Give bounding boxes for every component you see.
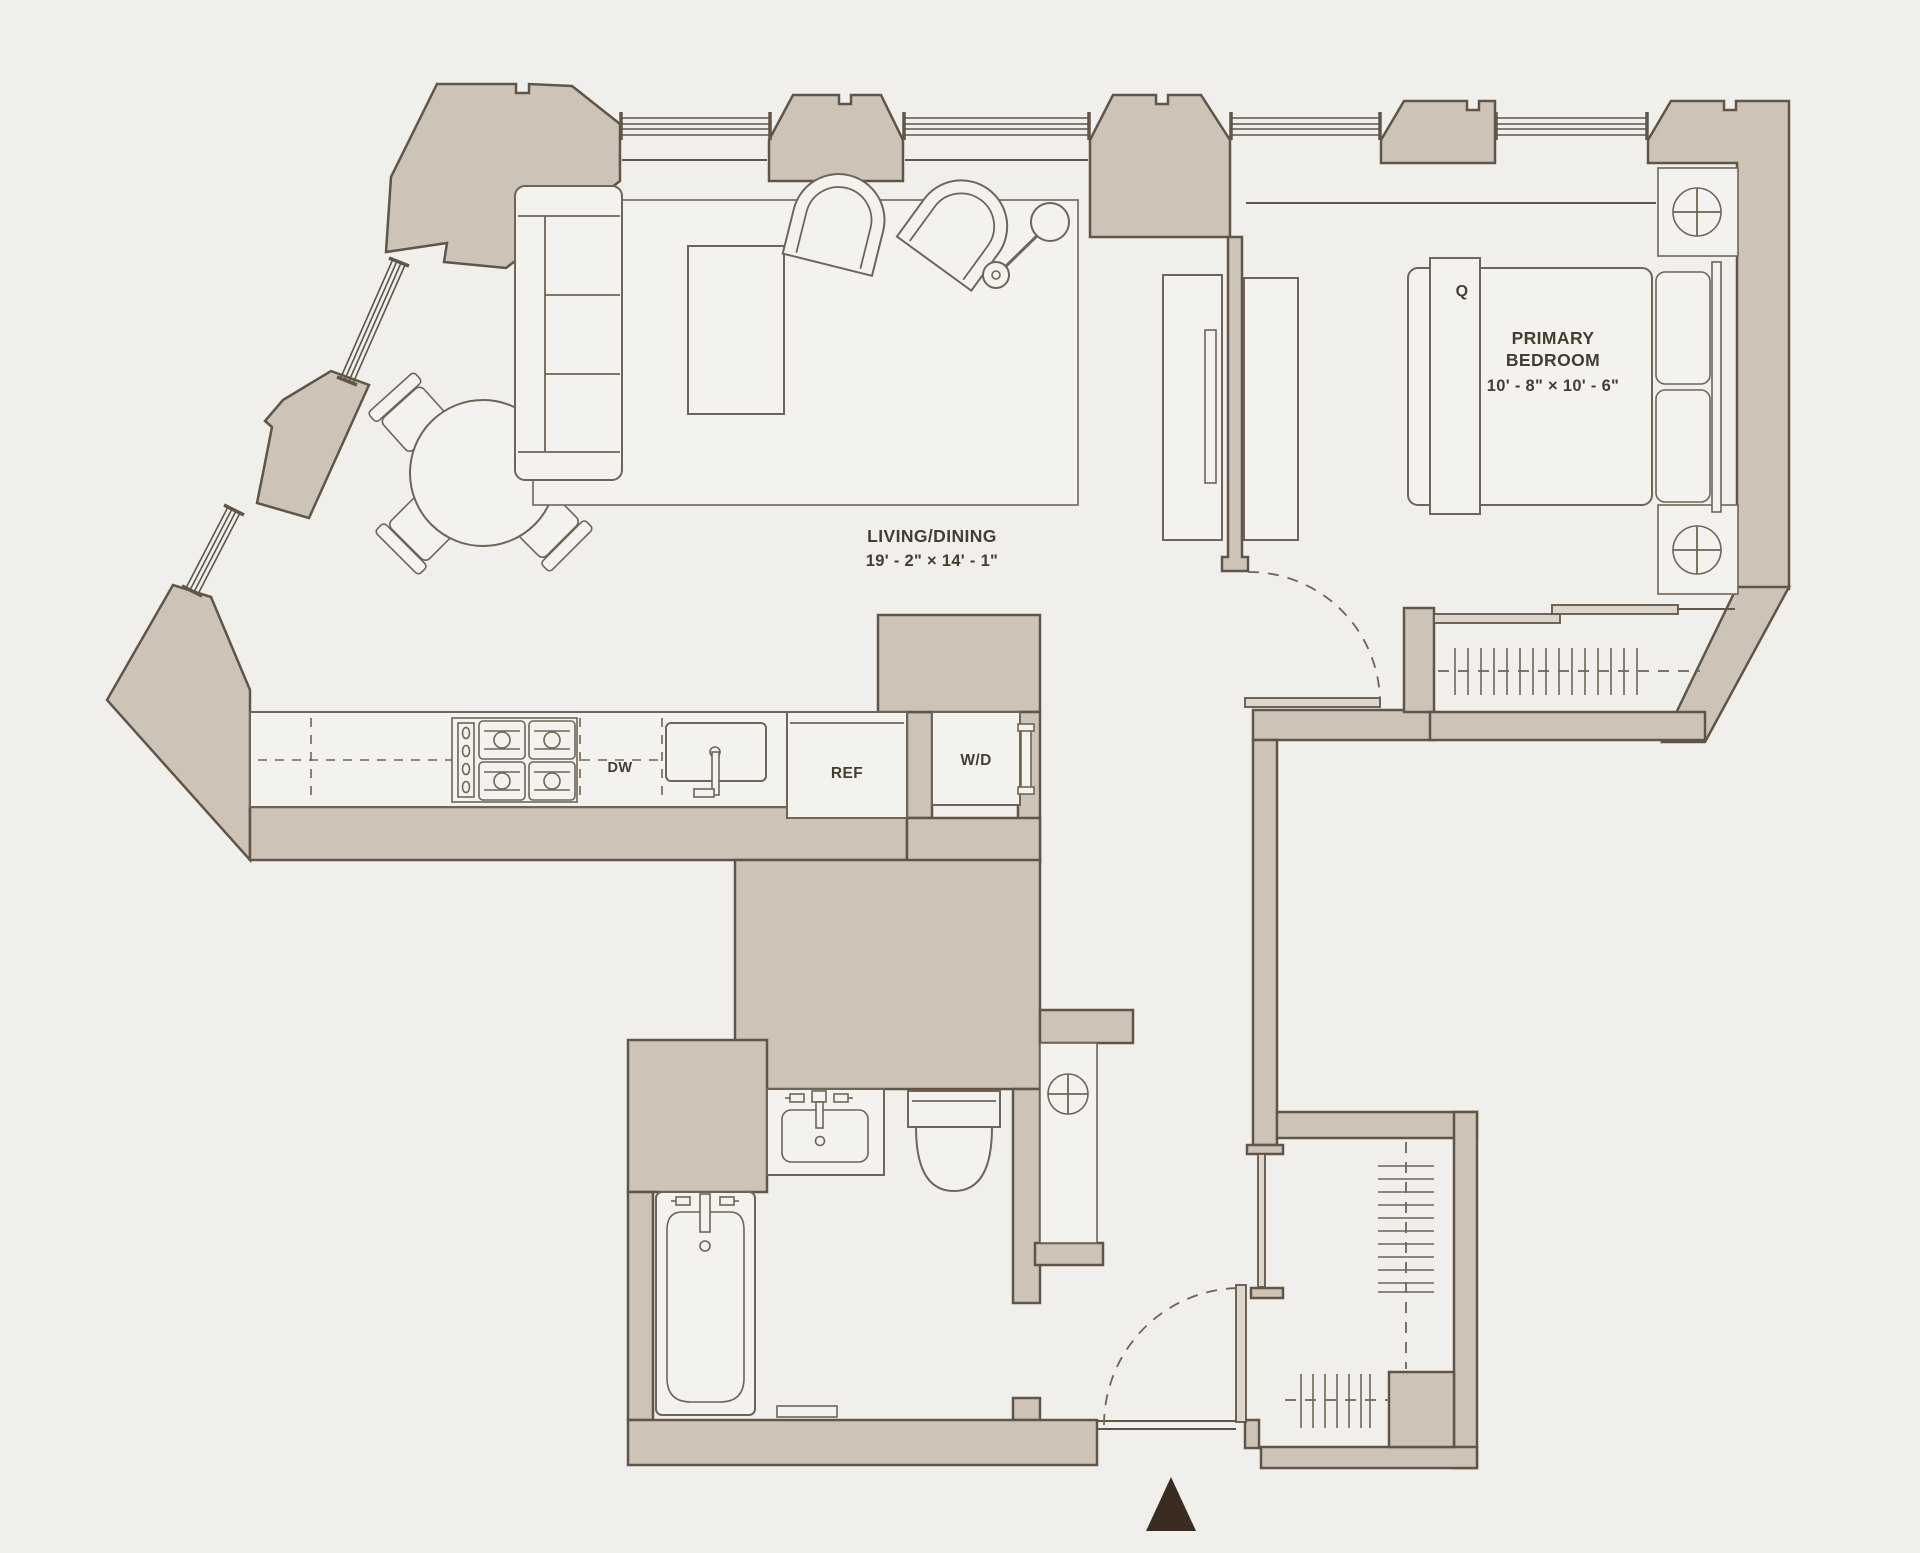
burner <box>529 721 575 759</box>
burner <box>529 762 575 800</box>
wall-closet-left <box>1404 608 1434 712</box>
sliding-door-panel <box>1434 614 1560 623</box>
wall-pier-4 <box>1381 101 1495 163</box>
wall-entry-hinge-block <box>1245 1420 1259 1448</box>
washer-dryer-label: W/D <box>960 752 991 769</box>
wall-closet-bottom <box>1430 712 1705 740</box>
wall-shaft-top <box>1040 1010 1133 1043</box>
wall-mid-diagonal-block <box>257 371 369 518</box>
door-swing-arc <box>1104 1288 1241 1425</box>
door-swing-arc <box>1248 572 1380 701</box>
refrigerator-label: REF <box>831 765 863 782</box>
bath-saddle <box>777 1406 837 1417</box>
column-symbol-icon <box>1048 1074 1088 1114</box>
window-top-3 <box>1230 112 1381 140</box>
headboard <box>1712 262 1721 512</box>
wall-entry-closet-top <box>1277 1112 1477 1138</box>
bedroom-closet <box>1434 605 1735 695</box>
wall-bath-east-upper <box>1013 1089 1040 1303</box>
wall-bottom-band <box>628 1420 1097 1465</box>
wall-bath-mass <box>735 860 1040 1089</box>
pillow <box>1656 272 1710 384</box>
living-dining-label: LIVING/DINING <box>867 526 997 546</box>
wall-bath-step <box>628 1040 767 1192</box>
bed-size-label: Q <box>1456 283 1469 300</box>
wall-entry-closet-right <box>1454 1112 1477 1468</box>
wall-pier-2 <box>769 95 903 181</box>
wall-bath-east-stub <box>1013 1398 1040 1420</box>
floor-plan-svg: LIVING/DINING 19' - 2" × 14' - 1" PRIMAR… <box>0 0 1920 1553</box>
toilet-icon <box>908 1091 1000 1191</box>
wall-bath-west <box>628 1192 653 1420</box>
wall-entry-closet-bottom <box>1261 1447 1477 1468</box>
pillow <box>1656 390 1710 502</box>
wall-entry-stub <box>1251 1288 1283 1298</box>
coffee-table <box>688 246 784 414</box>
wall-entry-closet-corner <box>1389 1372 1454 1447</box>
wall-pier-3 <box>1090 95 1230 237</box>
floor-plan-page: LIVING/DINING 19' - 2" × 14' - 1" PRIMAR… <box>0 0 1920 1553</box>
bedroom-door <box>1245 572 1380 707</box>
sofa <box>515 186 622 480</box>
window-diagonal-2 <box>182 505 244 596</box>
dishwasher-label: DW <box>608 760 633 776</box>
column-symbol-icon <box>1673 526 1721 574</box>
window-top-2 <box>903 112 1090 140</box>
entry <box>1097 1142 1434 1429</box>
closet-door-panel <box>1258 1154 1265 1287</box>
wall-corridor-east <box>1253 740 1277 1145</box>
wall-wd-bottom <box>907 818 1040 862</box>
shaft-niche <box>1040 1043 1097 1243</box>
wall-corridor-east-cap <box>1247 1145 1283 1154</box>
wall-shaft-bottom-cap <box>1035 1243 1103 1265</box>
living-dining-dims: 19' - 2" × 14' - 1" <box>866 552 998 570</box>
bathtub-icon <box>656 1192 755 1415</box>
burner <box>479 721 525 759</box>
burner <box>479 762 525 800</box>
wardrobe <box>1244 278 1298 540</box>
entry-closet-hatch <box>1378 1142 1434 1369</box>
bedroom-label-line2: BEDROOM <box>1506 350 1600 370</box>
vanity-sink-icon <box>767 1089 884 1175</box>
bedroom-dims: 10' - 8" × 10' - 6" <box>1487 377 1619 395</box>
wall-ref-wd-pier <box>907 712 932 818</box>
wall-wd-top-block <box>878 615 1040 712</box>
entry-door <box>1097 1285 1246 1429</box>
north-arrow-icon <box>1146 1477 1196 1531</box>
sliding-door-panel <box>1552 605 1678 614</box>
door-leaf <box>1236 1285 1246 1422</box>
bedroom-label-line1: PRIMARY <box>1512 328 1595 348</box>
window-top-4 <box>1495 112 1648 140</box>
wall-kitchen-west-wedge <box>107 585 250 860</box>
window-diagonal-1 <box>337 258 409 385</box>
primary-bedroom <box>1244 168 1738 707</box>
entry-closet-hatch-2 <box>1285 1374 1389 1428</box>
window-top-1 <box>621 112 770 140</box>
stove-icon <box>452 718 577 802</box>
tv <box>1205 330 1216 483</box>
wall-hall-band <box>1253 710 1434 740</box>
door-leaf <box>1245 698 1380 707</box>
column-symbol-icon <box>1673 188 1721 236</box>
